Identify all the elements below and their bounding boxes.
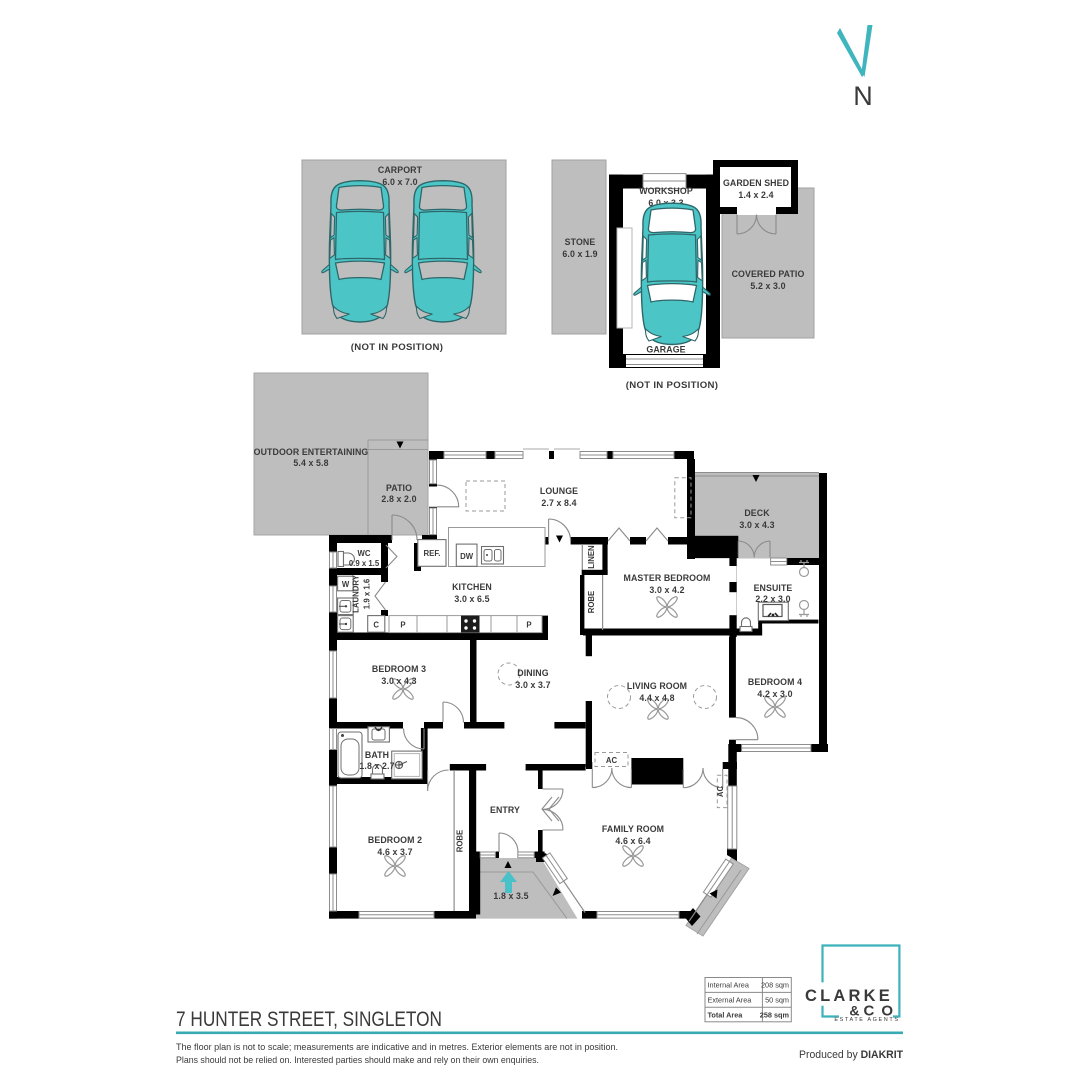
svg-text:DINING: DINING	[517, 668, 548, 678]
svg-text:GARDEN SHED: GARDEN SHED	[723, 178, 789, 188]
svg-text:STONE: STONE	[565, 237, 596, 247]
svg-text:DW: DW	[460, 552, 474, 561]
svg-text:(NOT IN POSITION): (NOT IN POSITION)	[626, 380, 719, 391]
svg-text:BEDROOM 4: BEDROOM 4	[748, 677, 802, 687]
svg-text:BATH: BATH	[365, 750, 389, 760]
svg-text:KITCHEN: KITCHEN	[452, 582, 492, 592]
svg-text:C: C	[373, 621, 379, 630]
svg-text:1.9 x 1.6: 1.9 x 1.6	[363, 578, 372, 609]
svg-text:PATIO: PATIO	[386, 483, 412, 493]
svg-text:OUTDOOR ENTERTAINING: OUTDOOR ENTERTAINING	[254, 447, 369, 457]
svg-text:P: P	[526, 621, 531, 630]
svg-text:3.0 x 4.3: 3.0 x 4.3	[739, 520, 774, 530]
svg-text:208 sqm: 208 sqm	[761, 981, 789, 990]
svg-text:REF.: REF.	[424, 549, 441, 558]
svg-text:AC: AC	[716, 786, 725, 798]
svg-text:ENTRY: ENTRY	[490, 805, 520, 815]
svg-text:4.4 x 4.8: 4.4 x 4.8	[639, 693, 674, 703]
svg-text:WORKSHOP: WORKSHOP	[639, 186, 693, 196]
svg-text:4.2 x 3.0: 4.2 x 3.0	[757, 689, 792, 699]
svg-text:5.2 x 3.0: 5.2 x 3.0	[750, 281, 785, 291]
svg-text:Internal Area: Internal Area	[708, 981, 750, 990]
svg-text:CARPORT: CARPORT	[378, 165, 423, 175]
svg-text:FAMILY ROOM: FAMILY ROOM	[602, 824, 664, 834]
svg-text:LINEN: LINEN	[587, 545, 596, 569]
svg-text:3.0 x 3.7: 3.0 x 3.7	[515, 680, 550, 690]
svg-text:Produced by DIAKRIT: Produced by DIAKRIT	[799, 1049, 903, 1061]
svg-text:P: P	[400, 621, 405, 630]
svg-text:GARAGE: GARAGE	[646, 345, 685, 355]
svg-text:WC: WC	[358, 549, 371, 558]
svg-text:0.9 x 1.5: 0.9 x 1.5	[349, 559, 380, 568]
svg-text:LIVING ROOM: LIVING ROOM	[627, 681, 687, 691]
svg-text:5.4 x 5.8: 5.4 x 5.8	[293, 458, 328, 468]
svg-text:ROBE: ROBE	[456, 830, 465, 853]
svg-text:4.6 x 3.7: 4.6 x 3.7	[377, 847, 412, 857]
svg-text:(NOT IN POSITION): (NOT IN POSITION)	[351, 342, 444, 353]
svg-text:50 sqm: 50 sqm	[765, 996, 789, 1005]
svg-text:COVERED PATIO: COVERED PATIO	[732, 269, 805, 279]
svg-text:BEDROOM 3: BEDROOM 3	[372, 664, 426, 674]
svg-text:ESTATE AGENTS: ESTATE AGENTS	[834, 1017, 899, 1023]
svg-text:7 HUNTER STREET, SINGLETON: 7 HUNTER STREET, SINGLETON	[176, 1008, 442, 1031]
svg-text:Plans should not be relied on.: Plans should not be relied on. Intereste…	[176, 1055, 539, 1065]
svg-text:6.0 x 7.0: 6.0 x 7.0	[382, 177, 417, 187]
svg-text:3.0 x 4.3: 3.0 x 4.3	[381, 676, 416, 686]
svg-text:258 sqm: 258 sqm	[760, 1011, 790, 1020]
svg-text:3.0 x 6.5: 3.0 x 6.5	[454, 594, 489, 604]
svg-text:BEDROOM 2: BEDROOM 2	[368, 835, 422, 845]
svg-text:W: W	[342, 580, 350, 589]
svg-text:LOUNGE: LOUNGE	[540, 486, 578, 496]
svg-text:The floor plan is not to scale: The floor plan is not to scale; measurem…	[176, 1042, 618, 1052]
svg-text:2.7 x 8.4: 2.7 x 8.4	[541, 498, 576, 508]
svg-text:MASTER BEDROOM: MASTER BEDROOM	[624, 573, 711, 583]
svg-text:External Area: External Area	[708, 996, 753, 1005]
svg-text:DECK: DECK	[744, 508, 770, 518]
svg-text:N: N	[853, 81, 873, 111]
svg-text:2.2 x 3.0: 2.2 x 3.0	[755, 594, 790, 604]
svg-text:1.8 x 2.7: 1.8 x 2.7	[359, 761, 394, 771]
svg-text:LAUNDRY: LAUNDRY	[352, 574, 361, 613]
svg-text:Total Area: Total Area	[708, 1011, 744, 1020]
svg-text:2.8 x 2.0: 2.8 x 2.0	[381, 494, 416, 504]
svg-text:1.4 x 2.4: 1.4 x 2.4	[738, 190, 773, 200]
svg-text:6.0 x 1.9: 6.0 x 1.9	[562, 249, 597, 259]
svg-text:AC: AC	[606, 756, 618, 765]
svg-text:ENSUITE: ENSUITE	[754, 583, 793, 593]
svg-text:ROBE: ROBE	[587, 591, 596, 614]
svg-text:3.0 x 4.2: 3.0 x 4.2	[649, 585, 684, 595]
svg-text:4.6 x 6.4: 4.6 x 6.4	[615, 836, 650, 846]
